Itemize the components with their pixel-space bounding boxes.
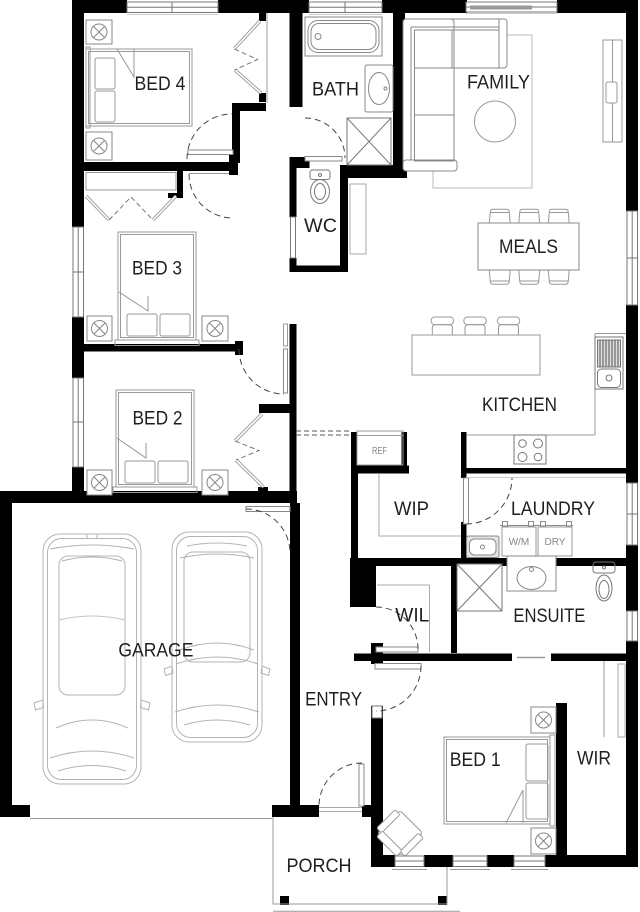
svg-text:BED 2: BED 2 bbox=[133, 409, 183, 430]
svg-text:WC: WC bbox=[304, 216, 337, 237]
svg-text:REF: REF bbox=[372, 446, 387, 457]
svg-text:PORCH: PORCH bbox=[287, 856, 352, 877]
svg-text:BED 4: BED 4 bbox=[135, 74, 186, 95]
svg-text:W/M: W/M bbox=[509, 537, 530, 548]
svg-text:MEALS: MEALS bbox=[499, 237, 558, 258]
svg-text:BED 3: BED 3 bbox=[132, 259, 182, 280]
svg-text:ENTRY: ENTRY bbox=[305, 690, 362, 711]
svg-text:LAUNDRY: LAUNDRY bbox=[511, 499, 595, 520]
svg-text:BED 1: BED 1 bbox=[450, 750, 501, 771]
svg-text:KITCHEN: KITCHEN bbox=[482, 395, 557, 416]
svg-text:ENSUITE: ENSUITE bbox=[513, 606, 585, 627]
svg-text:WIL: WIL bbox=[395, 606, 429, 627]
svg-text:WIR: WIR bbox=[577, 749, 611, 770]
svg-text:FAMILY: FAMILY bbox=[467, 73, 530, 94]
svg-text:WIP: WIP bbox=[394, 499, 429, 520]
svg-text:BATH: BATH bbox=[312, 80, 359, 101]
svg-text:DRY: DRY bbox=[545, 537, 566, 548]
svg-text:GARAGE: GARAGE bbox=[118, 641, 193, 662]
